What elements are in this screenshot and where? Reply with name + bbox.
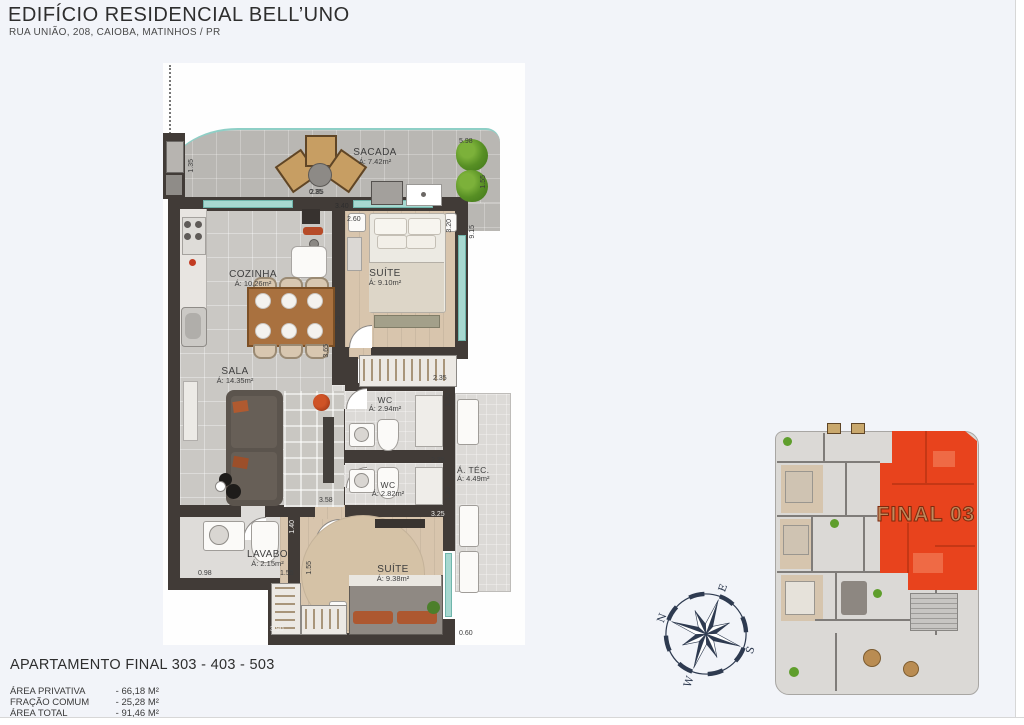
plate <box>281 323 297 339</box>
burner <box>184 221 191 228</box>
page-subtitle: RUA UNIÃO, 208, CAIOBA, MATINHOS / PR <box>9 27 221 38</box>
room-area: Á: 9.10m² <box>345 279 425 287</box>
dim-label: 1.40 <box>289 520 296 534</box>
keyplan-final03-label: FINAL 03 <box>873 503 979 527</box>
room-label-sala: SALA Á: 14.35m² <box>195 366 275 385</box>
room-area: Á: 10.26m² <box>213 280 293 288</box>
room-area: Á: 14.35m² <box>195 377 275 385</box>
keyplan-wall <box>835 633 837 691</box>
flower-vase <box>313 394 330 411</box>
grill <box>371 181 403 205</box>
burner <box>195 221 202 228</box>
dim-label: 0.60 <box>459 630 473 637</box>
dim-label: 2.35 <box>431 457 445 464</box>
keyplan-highlight-furniture <box>913 553 943 573</box>
keyplan-bed <box>785 581 815 615</box>
tv-shelf <box>375 519 425 528</box>
compass-s: S <box>744 645 758 656</box>
keyplan-chair <box>851 423 865 434</box>
keyplan-highlight-wall <box>935 545 975 547</box>
compass-e: E <box>716 582 730 593</box>
keyplan-wall <box>835 571 837 621</box>
room-label-suite1: SUÍTE Á: 9.10m² <box>345 268 425 287</box>
pillow <box>374 218 407 235</box>
keyplan-wall <box>845 461 847 517</box>
burner <box>184 233 191 240</box>
wall <box>443 519 455 551</box>
keyplan-plant <box>789 667 799 677</box>
floor-plan: SACADA Á: 7.42m² COZINHA Á: 10.26m² SUÍT… <box>163 63 525 645</box>
keyplan-highlight-wall <box>925 431 927 485</box>
page-title: EDIFÍCIO RESIDENCIAL BELL’UNO <box>8 4 350 27</box>
room-label-wc1: WC Á: 2.94m² <box>345 396 425 414</box>
keyplan-highlight-furniture <box>933 451 955 467</box>
keyplan-bed <box>785 471 813 503</box>
plant-icon <box>427 601 440 614</box>
keyplan-wall <box>777 515 877 517</box>
room-area: Á: 9.38m² <box>353 575 433 583</box>
keyplan: FINAL 03 <box>775 423 985 702</box>
dim-label: 3.65 <box>323 344 330 358</box>
plate <box>255 323 271 339</box>
pillow <box>377 235 407 249</box>
round-table <box>308 163 332 187</box>
dresser <box>347 237 362 271</box>
compass-rose: N E S W <box>652 580 760 688</box>
dim-label: 3.25 <box>431 511 445 518</box>
table-dot <box>421 192 426 197</box>
keyplan-table <box>863 649 881 667</box>
keyplan-bed <box>783 525 809 555</box>
window <box>445 553 452 617</box>
wall <box>168 197 180 590</box>
plate <box>281 293 297 309</box>
rug <box>284 391 344 507</box>
keyplan-wall <box>777 461 880 463</box>
keyplan-chair <box>827 423 841 434</box>
room-label-tecnica: Á. TÉC. Á: 4.49m² <box>457 466 519 484</box>
right-margin <box>1015 0 1024 724</box>
dining-chair <box>253 344 277 359</box>
keyplan-wall <box>863 515 865 573</box>
pillow <box>406 235 436 249</box>
dim-label: 2.60 <box>347 216 361 223</box>
dim-label: 1.35 <box>188 159 195 173</box>
burner <box>195 233 202 240</box>
wall <box>345 450 443 463</box>
compass-w: W <box>682 674 697 688</box>
wardrobe-hangers <box>275 587 295 629</box>
area-value: - 66,18 M² <box>116 686 159 697</box>
dim-label: 3.90 <box>270 626 284 633</box>
room-label-suite2: SUÍTE Á: 9.38m² <box>353 564 433 583</box>
dim-label: 0.98 <box>198 570 212 577</box>
room-label-lavabo: LAVABO Á: 2.15m² <box>225 549 310 568</box>
pillow <box>408 218 441 235</box>
window <box>203 200 293 208</box>
toilet <box>377 419 399 451</box>
area-row: FRAÇÃO COMUM - 25,28 M² <box>10 697 159 708</box>
keyplan-plant <box>783 437 792 446</box>
kitchen-sink-basin <box>185 313 201 339</box>
lavabo-basin <box>209 525 229 545</box>
dim-label: 0.35 <box>309 189 323 196</box>
room-area: Á: 7.42m² <box>335 158 415 166</box>
room-area: Á: 2.82m² <box>348 490 428 498</box>
ac-condenser <box>459 551 479 593</box>
room-label-sacada: SACADA Á: 7.42m² <box>335 147 415 166</box>
dim-label: 9.15 <box>469 225 476 239</box>
dim-label: 1.55 <box>280 570 294 577</box>
plate <box>307 323 323 339</box>
kitchen-towel <box>303 227 323 235</box>
ac-condenser <box>459 505 479 547</box>
area-row: ÁREA PRIVATIVA - 66,18 M² <box>10 686 159 697</box>
apartment-title: APARTAMENTO FINAL 303 - 403 - 503 <box>10 657 275 673</box>
throw-pillow <box>232 456 249 469</box>
keyplan-plant <box>830 519 839 528</box>
keyplan-wall <box>823 433 825 463</box>
wc-sink-basin <box>354 427 369 442</box>
wardrobe-hangers <box>305 609 341 629</box>
keyplan-plant <box>873 589 882 598</box>
area-label: FRAÇÃO COMUM <box>10 697 113 708</box>
dim-label: 1.20 <box>445 487 452 501</box>
dim-label: 3.20 <box>446 219 453 233</box>
tech-door <box>457 399 479 445</box>
dim-label: 3.40 <box>335 203 349 210</box>
dim-label: 1.55 <box>480 175 487 189</box>
console-table <box>183 381 198 441</box>
dim-label: 5.98 <box>459 138 473 145</box>
keyplan-highlight-wall <box>907 523 909 573</box>
pillow-orange <box>353 611 393 624</box>
room-area: Á: 2.15m² <box>225 560 310 568</box>
balcony-pillar-equipment <box>166 175 182 195</box>
wall <box>168 578 280 590</box>
room-label-cozinha: COZINHA Á: 10.26m² <box>213 269 293 288</box>
plate <box>307 293 323 309</box>
area-label: ÁREA PRIVATIVA <box>10 686 113 697</box>
area-value: - 25,28 M² <box>116 697 159 708</box>
balcony-pillar-equipment <box>166 141 184 173</box>
stove-knob <box>189 259 196 266</box>
room-area: Á: 2.94m² <box>345 405 425 413</box>
dim-label: 1.55 <box>306 561 313 575</box>
wall-oven <box>302 209 320 224</box>
tv-panel <box>323 417 334 483</box>
floor-plant <box>226 484 241 499</box>
room-area: Á: 4.49m² <box>457 475 519 483</box>
room-label-wc2: WC Á: 2.82m² <box>348 481 428 499</box>
floor-lamp <box>215 481 226 492</box>
plate <box>255 293 271 309</box>
window <box>458 235 466 341</box>
dim-label: 2.35 <box>433 375 447 382</box>
kitchen-cart <box>291 246 327 278</box>
dim-label: 3.58 <box>319 497 333 504</box>
dim-label: 2.55 <box>335 316 342 330</box>
throw-pillow <box>232 400 248 413</box>
keyplan-stairs <box>910 593 958 631</box>
keyplan-table <box>903 661 919 677</box>
keyplan-wall <box>811 515 813 573</box>
dim-label: 1.20 <box>445 393 452 407</box>
dining-chair <box>279 344 303 359</box>
door-gap <box>241 505 265 517</box>
keyplan-highlight-wall <box>892 483 974 485</box>
keyplan-sofa <box>841 581 867 615</box>
bed-bench <box>374 315 440 328</box>
hall-floor <box>313 505 345 519</box>
